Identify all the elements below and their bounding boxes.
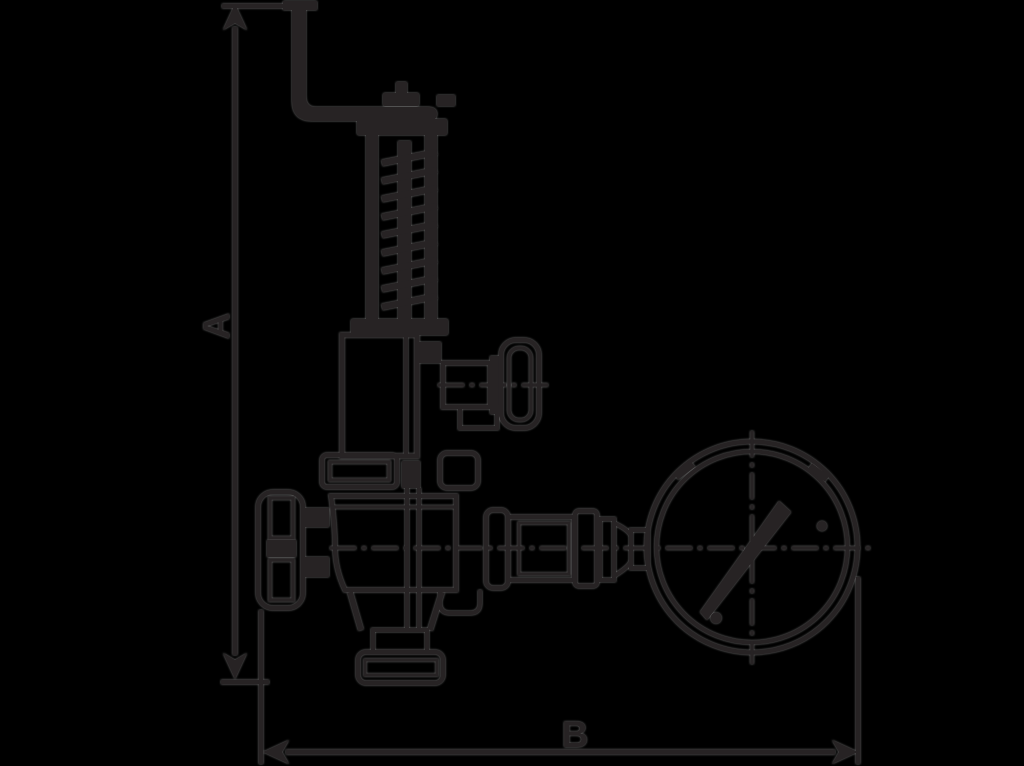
- dimension-b-label: B: [562, 714, 589, 755]
- technical-drawing-page: A B: [0, 0, 1024, 766]
- lock-nut-side: [437, 95, 455, 106]
- mid-flange: [322, 455, 397, 487]
- adjusting-screw: [396, 82, 407, 94]
- mid-flange-inner: [330, 462, 389, 480]
- body-right-foot: [440, 590, 480, 613]
- front-handwheel-window-top: [270, 498, 293, 538]
- spring-housing-wall-left: [366, 135, 378, 323]
- front-wheel-spoke-top: [303, 508, 329, 527]
- dimension-a-label: A: [196, 313, 237, 340]
- outlet-top-block: [440, 453, 478, 488]
- valve-body: [331, 496, 456, 590]
- gauge-needle: [700, 501, 791, 620]
- outlet-spout: [373, 630, 427, 652]
- lock-nut: [383, 93, 419, 106]
- relief-valve-drawing: [258, 1, 876, 683]
- bottom-flange: [358, 652, 443, 683]
- bottom-flange-inner: [365, 660, 437, 675]
- front-wheel-spoke-bottom: [303, 557, 329, 577]
- dimension-a-annotation: A: [196, 4, 298, 682]
- gauge-dial-screw-right: [817, 521, 827, 531]
- valve-dimension-diagram: A B: [0, 0, 1024, 766]
- spring-cap-flange: [357, 119, 447, 135]
- body-funnel-left: [350, 592, 361, 630]
- dimension-b-annotation: B: [261, 577, 858, 764]
- dimension-a-arrow-down: [223, 653, 247, 679]
- front-handwheel-window-bottom: [270, 560, 293, 600]
- gauge-dial-screw-left: [711, 613, 722, 624]
- dimension-b-arrow-right: [832, 740, 858, 764]
- front-handwheel-hub: [267, 540, 296, 557]
- mid-flange-right-block: [402, 461, 420, 488]
- bonnet-neck-block: [417, 342, 441, 363]
- dimension-b-arrow-left: [263, 740, 289, 764]
